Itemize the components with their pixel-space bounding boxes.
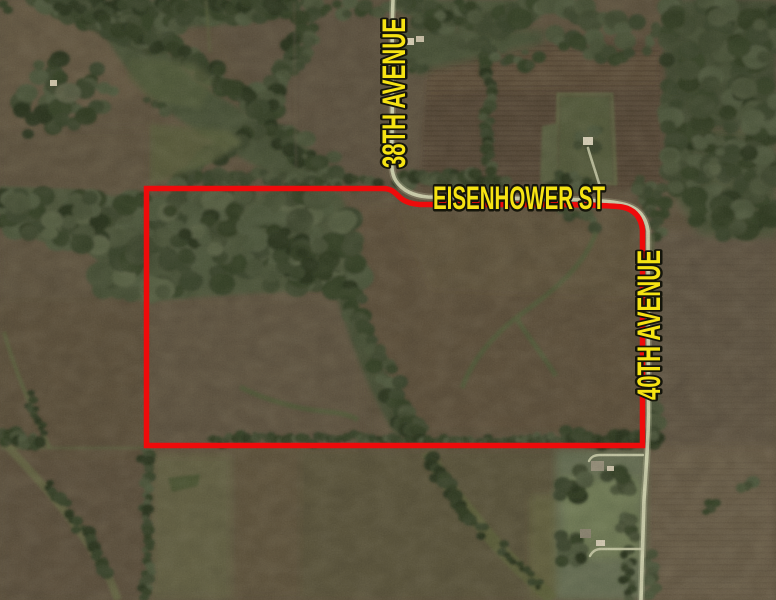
svg-text:EISENHOWER ST: EISENHOWER ST <box>433 180 605 216</box>
svg-text:38TH AVENUE: 38TH AVENUE <box>376 18 412 168</box>
svg-text:40TH AVENUE: 40TH AVENUE <box>631 250 667 400</box>
